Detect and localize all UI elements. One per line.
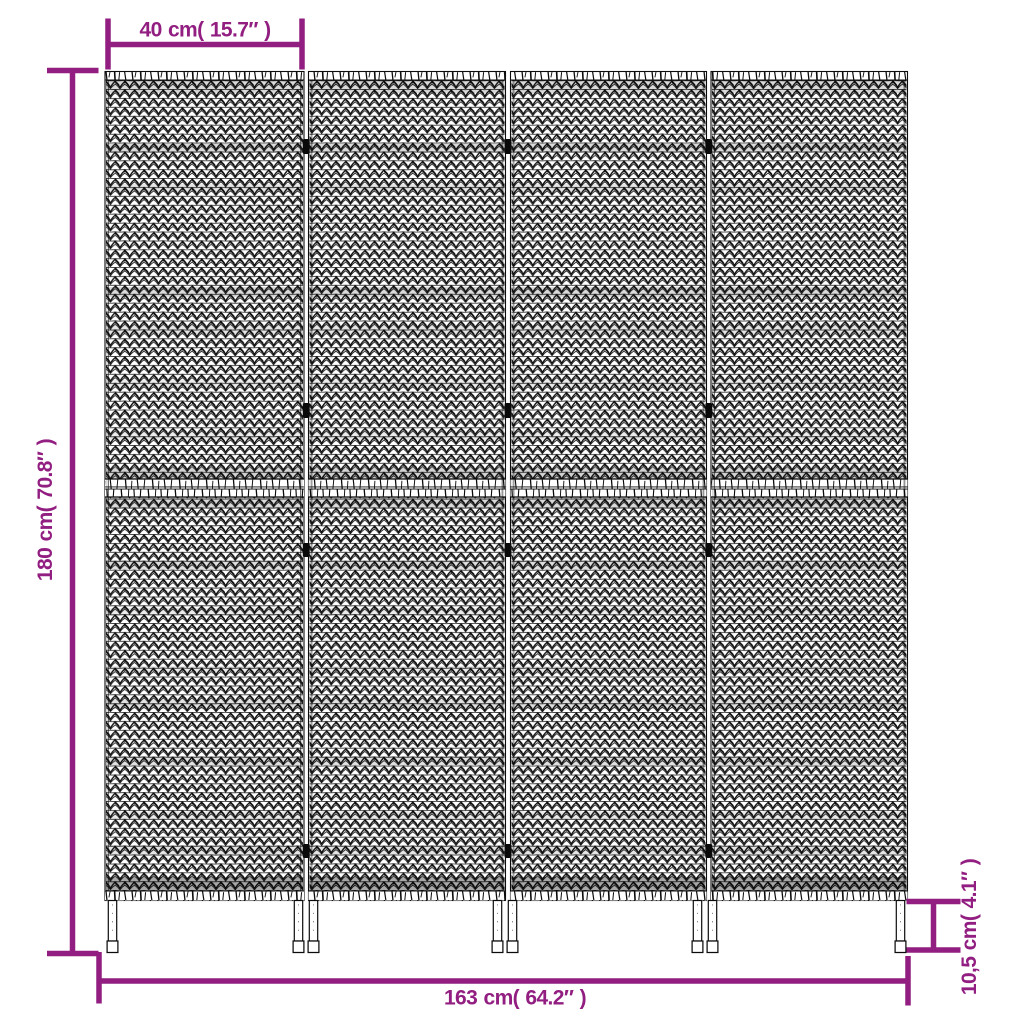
svg-text:40 cm( 15.7″ ): 40 cm( 15.7″ ) (139, 19, 270, 42)
svg-text:10,5 cm( 4.1″ ): 10,5 cm( 4.1″ ) (958, 859, 981, 995)
svg-text:180 cm( 70.8″ ): 180 cm( 70.8″ ) (34, 439, 57, 581)
svg-text:163 cm( 64.2″ ): 163 cm( 64.2″ ) (444, 987, 586, 1010)
